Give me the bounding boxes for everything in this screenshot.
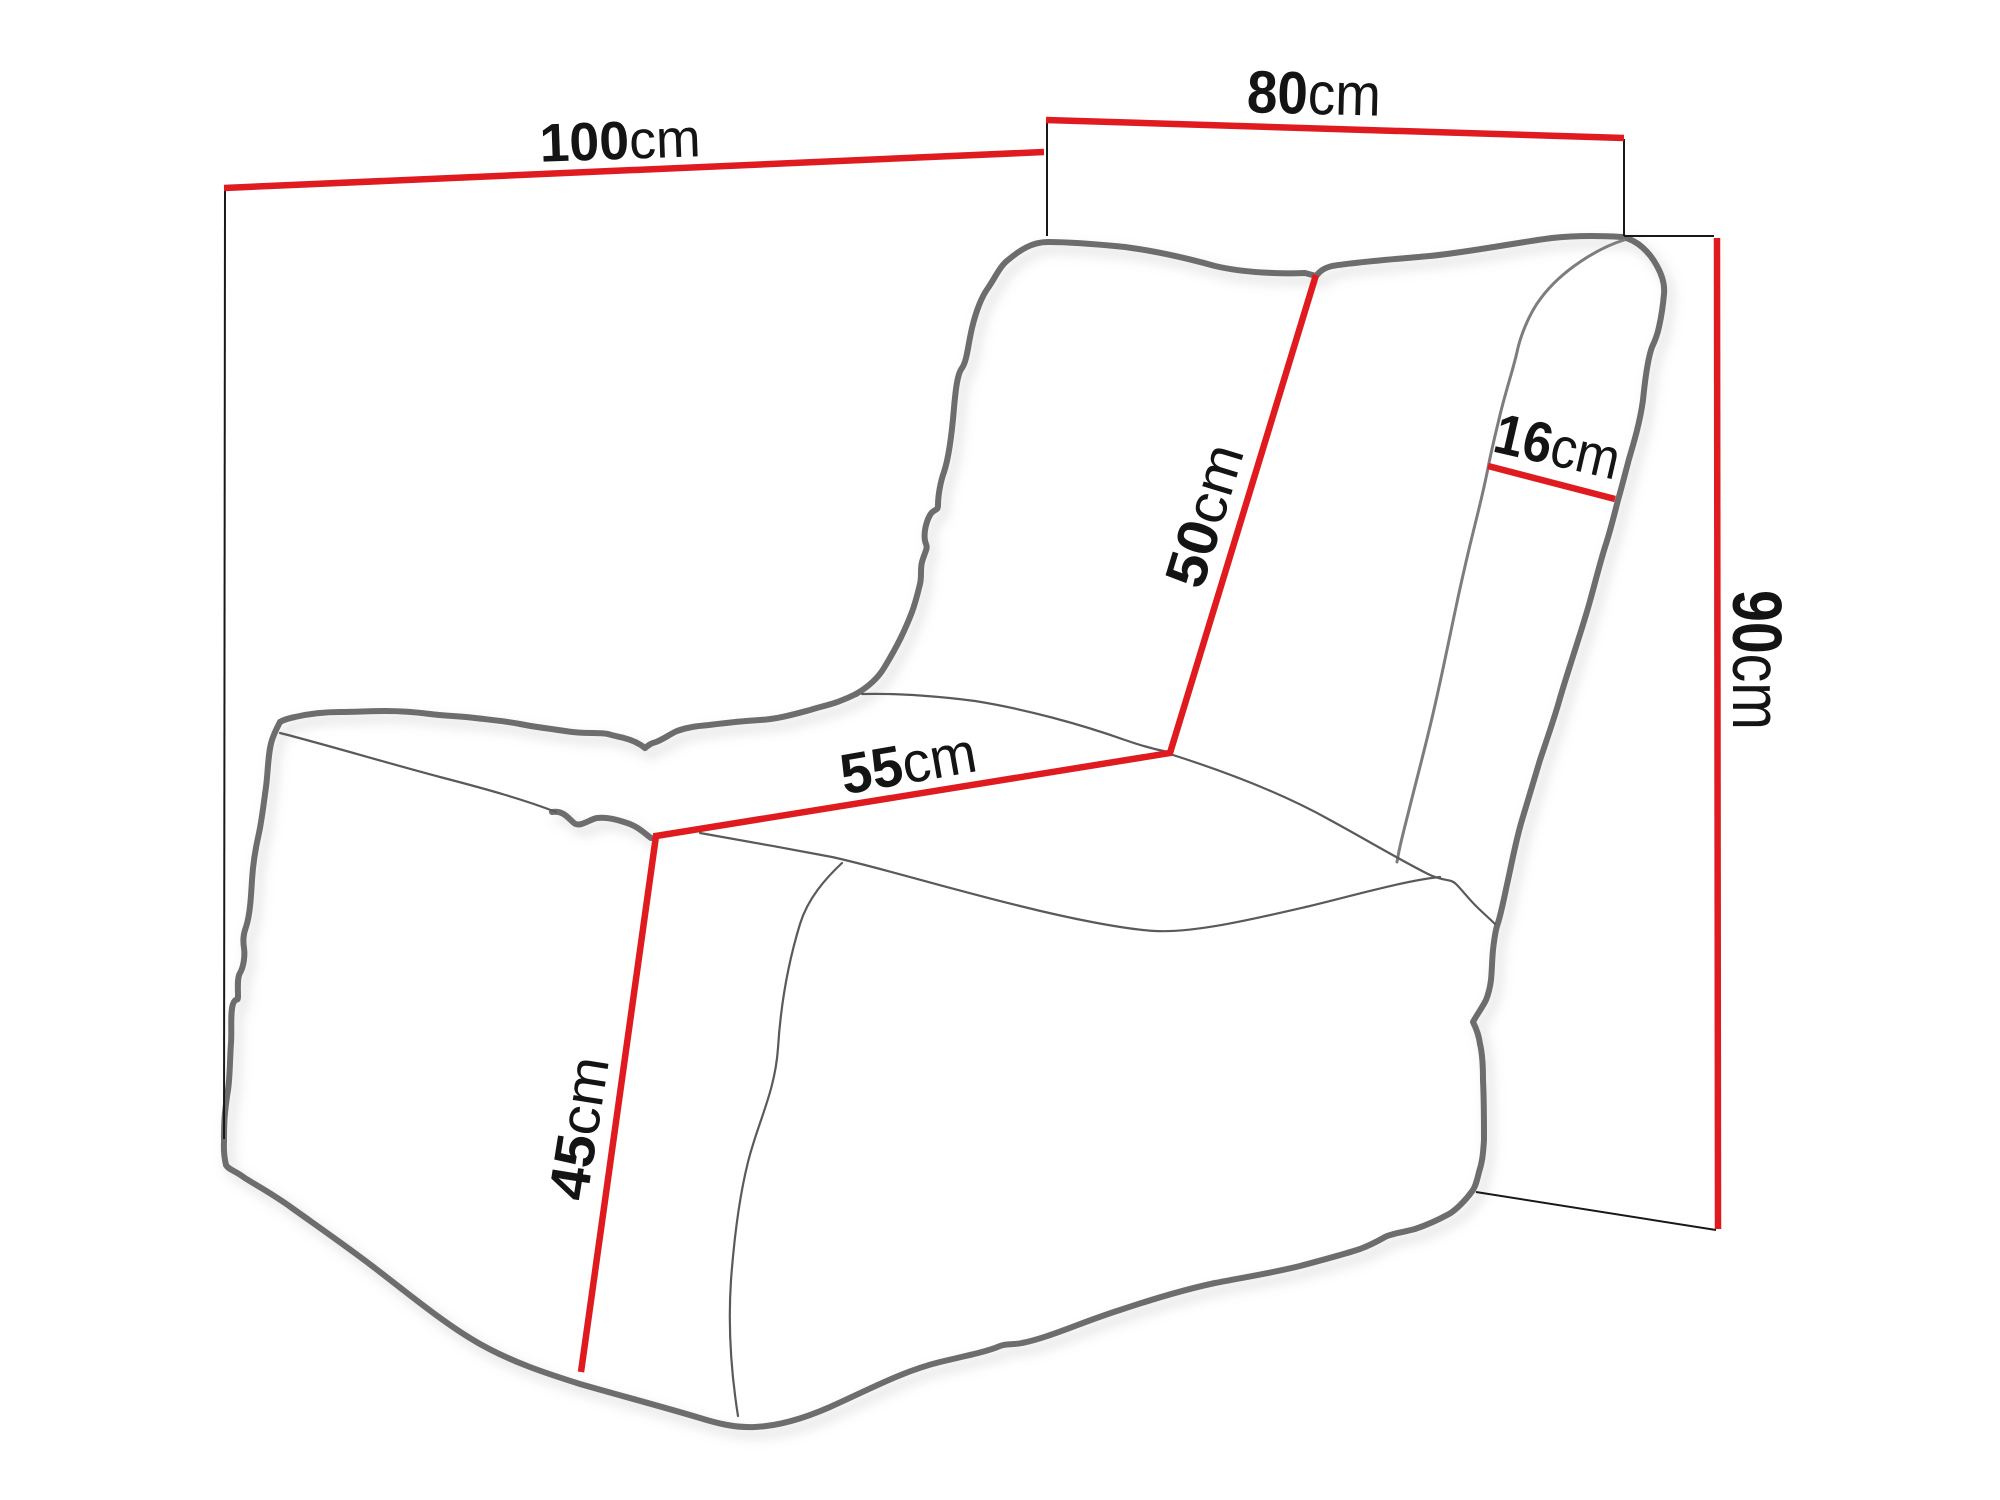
svg-text:90cm: 90cm (1718, 590, 1796, 730)
svg-text:80cm: 80cm (1246, 58, 1382, 128)
svg-text:100cm: 100cm (539, 108, 702, 174)
